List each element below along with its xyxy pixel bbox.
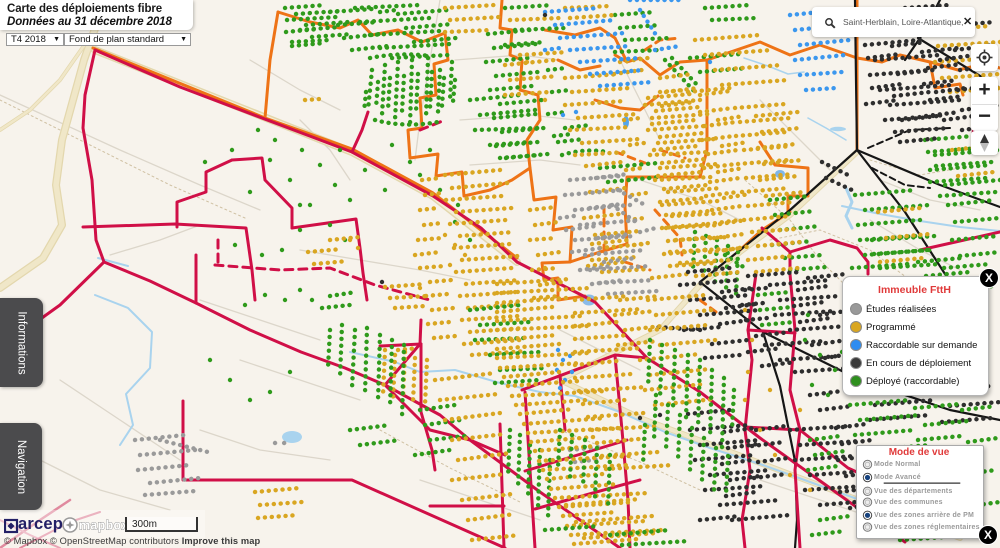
svg-text:mapbox: mapbox	[79, 519, 126, 533]
